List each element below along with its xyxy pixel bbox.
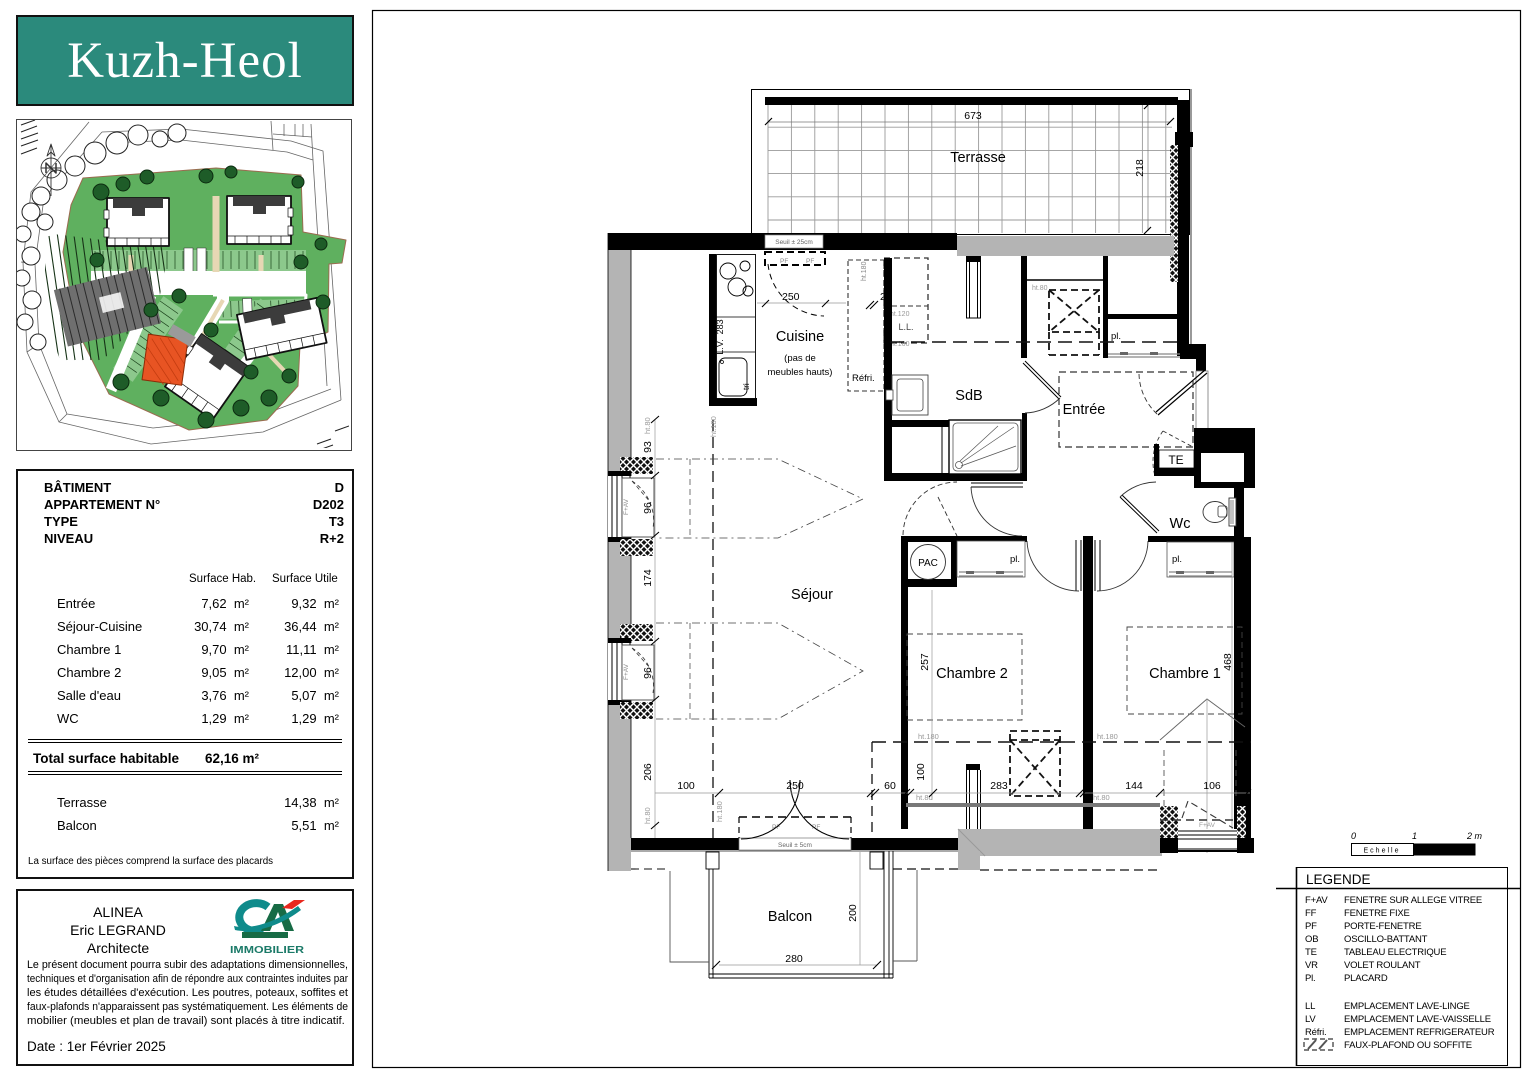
svg-text:OB: OB xyxy=(1305,934,1318,945)
svg-text:F+AV: F+AV xyxy=(623,498,630,515)
svg-text:Cuisine: Cuisine xyxy=(776,329,824,345)
svg-text:250: 250 xyxy=(782,291,800,303)
svg-text:EMPLACEMENT LAVE-VAISSELLE: EMPLACEMENT LAVE-VAISSELLE xyxy=(1344,1014,1491,1025)
svg-text:(pas de: (pas de xyxy=(784,353,816,364)
svg-text:Réfri.: Réfri. xyxy=(1305,1027,1327,1038)
svg-text:218: 218 xyxy=(1134,159,1146,177)
svg-text:F+AV: F+AV xyxy=(1199,822,1216,829)
svg-text:Echelle: Echelle xyxy=(1364,848,1401,855)
svg-text:Balcon: Balcon xyxy=(768,909,812,925)
svg-text:EMPLACEMENT LAVE-LINGE: EMPLACEMENT LAVE-LINGE xyxy=(1344,1001,1470,1012)
svg-text:TE: TE xyxy=(1168,453,1183,467)
svg-text:ht.80: ht.80 xyxy=(643,417,652,434)
svg-text:ht.180: ht.180 xyxy=(715,801,724,822)
svg-text:257: 257 xyxy=(919,653,931,671)
svg-text:ht.80: ht.80 xyxy=(916,793,933,802)
svg-text:ht.80: ht.80 xyxy=(1093,793,1110,802)
svg-text:100: 100 xyxy=(677,780,695,792)
svg-text:pl.: pl. xyxy=(1111,331,1121,342)
svg-text:meubles hauts): meubles hauts) xyxy=(768,367,833,378)
svg-text:L.V. 283: L.V. 283 xyxy=(715,319,725,354)
svg-text:0: 0 xyxy=(1351,831,1356,841)
svg-text:L.L.: L.L. xyxy=(898,322,913,332)
svg-text:Seuil ± 5cm: Seuil ± 5cm xyxy=(778,842,812,849)
svg-text:F+AV: F+AV xyxy=(1305,895,1328,906)
svg-text:2 m: 2 m xyxy=(1466,831,1483,841)
svg-text:Chambre 2: Chambre 2 xyxy=(936,666,1008,682)
svg-text:Séjour: Séjour xyxy=(791,587,833,603)
svg-text:96: 96 xyxy=(642,502,654,514)
svg-text:96: 96 xyxy=(642,667,654,679)
svg-text:250: 250 xyxy=(786,780,804,792)
svg-text:F+AV: F+AV xyxy=(623,663,630,680)
svg-text:Terrasse: Terrasse xyxy=(950,150,1006,166)
svg-text:FENETRE FIXE: FENETRE FIXE xyxy=(1344,908,1410,919)
svg-text:FENETRE SUR ALLEGE VITREE: FENETRE SUR ALLEGE VITREE xyxy=(1344,895,1482,906)
svg-text:VOLET ROULANT: VOLET ROULANT xyxy=(1344,960,1421,971)
svg-text:ht.80: ht.80 xyxy=(1032,285,1048,292)
svg-text:93: 93 xyxy=(642,441,654,453)
svg-text:ht.180: ht.180 xyxy=(861,261,868,281)
svg-text:tri: tri xyxy=(742,383,751,390)
svg-text:Réfri.: Réfri. xyxy=(852,373,875,384)
svg-text:ht.80: ht.80 xyxy=(643,807,652,824)
svg-text:60: 60 xyxy=(884,780,896,792)
svg-text:Seuil ± 25cm: Seuil ± 25cm xyxy=(775,239,813,246)
svg-text:VR: VR xyxy=(1305,960,1318,971)
svg-text:ht.180: ht.180 xyxy=(709,416,718,437)
svg-text:PF: PF xyxy=(806,258,814,265)
svg-text:PORTE-FENETRE: PORTE-FENETRE xyxy=(1344,921,1421,932)
svg-text:pl.: pl. xyxy=(1172,554,1182,565)
svg-text:200: 200 xyxy=(847,904,859,922)
svg-text:TABLEAU ELECTRIQUE: TABLEAU ELECTRIQUE xyxy=(1344,947,1446,958)
svg-text:174: 174 xyxy=(642,569,654,587)
svg-text:468: 468 xyxy=(1222,653,1234,671)
svg-text:PLACARD: PLACARD xyxy=(1344,973,1388,984)
svg-text:FF: FF xyxy=(1305,908,1317,919)
svg-text:ht.180: ht.180 xyxy=(1097,732,1118,741)
svg-text:LEGENDE: LEGENDE xyxy=(1306,872,1371,887)
svg-text:ht.120: ht.120 xyxy=(890,311,910,318)
svg-text:PF: PF xyxy=(780,258,788,265)
svg-text:PF: PF xyxy=(1305,921,1317,932)
svg-text:673: 673 xyxy=(964,110,982,122)
svg-text:1: 1 xyxy=(1412,831,1417,841)
svg-text:283: 283 xyxy=(990,780,1008,792)
svg-text:SdB: SdB xyxy=(955,388,982,404)
svg-text:280: 280 xyxy=(785,953,803,965)
svg-text:Wc: Wc xyxy=(1170,516,1191,532)
svg-text:TE: TE xyxy=(1305,947,1317,958)
svg-text:Entrée: Entrée xyxy=(1063,402,1106,418)
svg-text:Pl.: Pl. xyxy=(1305,973,1316,984)
svg-text:pl.: pl. xyxy=(1010,554,1020,565)
svg-text:LV: LV xyxy=(1305,1014,1316,1025)
svg-text:PAC: PAC xyxy=(918,558,938,569)
svg-text:144: 144 xyxy=(1125,780,1143,792)
svg-text:100: 100 xyxy=(915,763,927,781)
svg-text:FAUX-PLAFOND OU SOFFITE: FAUX-PLAFOND OU SOFFITE xyxy=(1344,1040,1472,1051)
svg-text:206: 206 xyxy=(642,763,654,781)
svg-text:LL: LL xyxy=(1305,1001,1315,1012)
svg-text:106: 106 xyxy=(1203,780,1221,792)
svg-text:OSCILLO-BATTANT: OSCILLO-BATTANT xyxy=(1344,934,1428,945)
svg-text:ht.180: ht.180 xyxy=(918,732,939,741)
svg-text:Chambre 1: Chambre 1 xyxy=(1149,666,1221,682)
svg-text:EMPLACEMENT REFRIGERATEUR: EMPLACEMENT REFRIGERATEUR xyxy=(1344,1027,1495,1038)
